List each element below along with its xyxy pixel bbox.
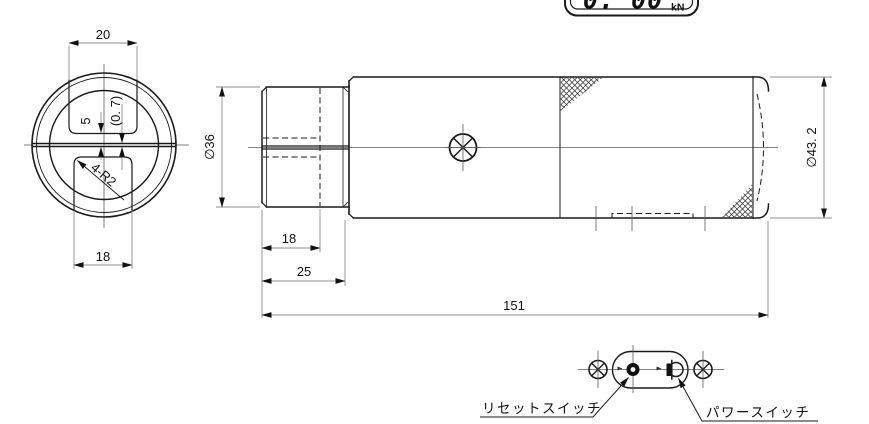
knurl-hatch-top	[561, 78, 603, 111]
dim-slot-to-center: 5	[78, 112, 101, 160]
cap-bottom-corner	[753, 204, 769, 218]
svg-text:18: 18	[282, 231, 296, 246]
svg-text:パワースイッチ: パワースイッチ	[706, 405, 810, 420]
dim-corner-radius: 4-R2	[78, 160, 125, 200]
svg-text:25: 25	[297, 264, 311, 279]
technical-drawing: 0. 00 kN 20 18	[0, 0, 869, 424]
shaft-section	[262, 87, 349, 207]
bottom-view: リセットスイッチ パワースイッチ	[480, 345, 818, 421]
reset-switch-callout: リセットスイッチ	[480, 378, 629, 418]
display-readout: 0. 00 kN	[565, 0, 698, 16]
svg-text:18: 18	[96, 249, 110, 264]
svg-text:∅36: ∅36	[202, 134, 217, 160]
dim-shaft-diameter: ∅36	[202, 87, 260, 207]
svg-text:∅43. 2: ∅43. 2	[804, 127, 819, 167]
side-view: ∅36 18 25 151 ∅43. 2	[202, 77, 832, 318]
svg-text:20: 20	[96, 27, 110, 42]
body-section	[349, 77, 769, 231]
drawing-canvas: 0. 00 kN 20 18	[0, 0, 869, 424]
dim-total-length: 151	[262, 221, 768, 318]
display-value: 0. 00	[583, 0, 663, 15]
svg-text:(0. 7): (0. 7)	[108, 96, 123, 126]
svg-text:151: 151	[503, 298, 525, 313]
front-view: 20 18 5 (0. 7) 4-R2	[24, 27, 189, 269]
dim-bottom-slot-width: 18	[74, 211, 132, 270]
dim-thread-length: 18	[262, 209, 320, 318]
dim-top-slot-width: 20	[69, 27, 137, 80]
cap-top-corner	[753, 77, 769, 91]
svg-text:5: 5	[78, 117, 93, 124]
knurl-hatch-bottom	[722, 184, 752, 217]
dim-shaft-length: 25	[262, 220, 345, 286]
svg-text:リセットスイッチ: リセットスイッチ	[482, 401, 602, 416]
display-unit: kN	[671, 2, 684, 14]
dim-body-diameter: ∅43. 2	[770, 77, 832, 218]
power-switch-callout: パワースイッチ	[679, 379, 819, 422]
body-screw	[445, 124, 481, 171]
